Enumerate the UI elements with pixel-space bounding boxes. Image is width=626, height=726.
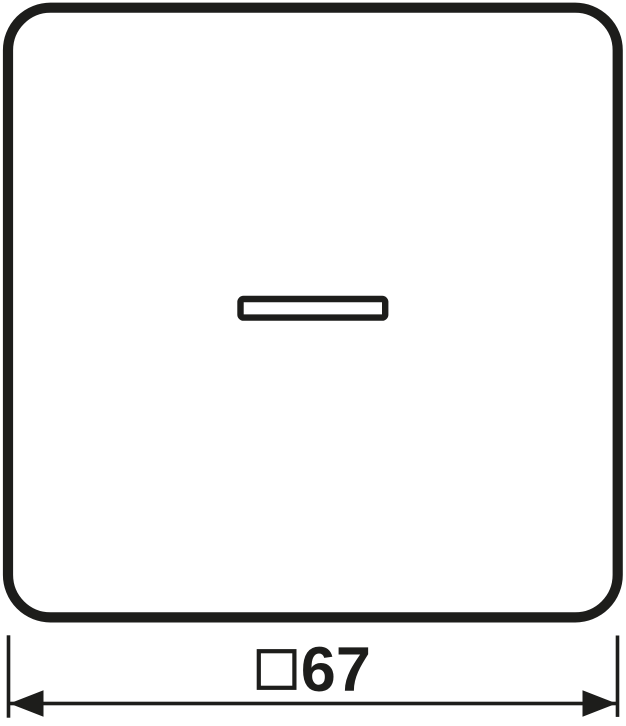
svg-text:67: 67 <box>301 635 371 705</box>
